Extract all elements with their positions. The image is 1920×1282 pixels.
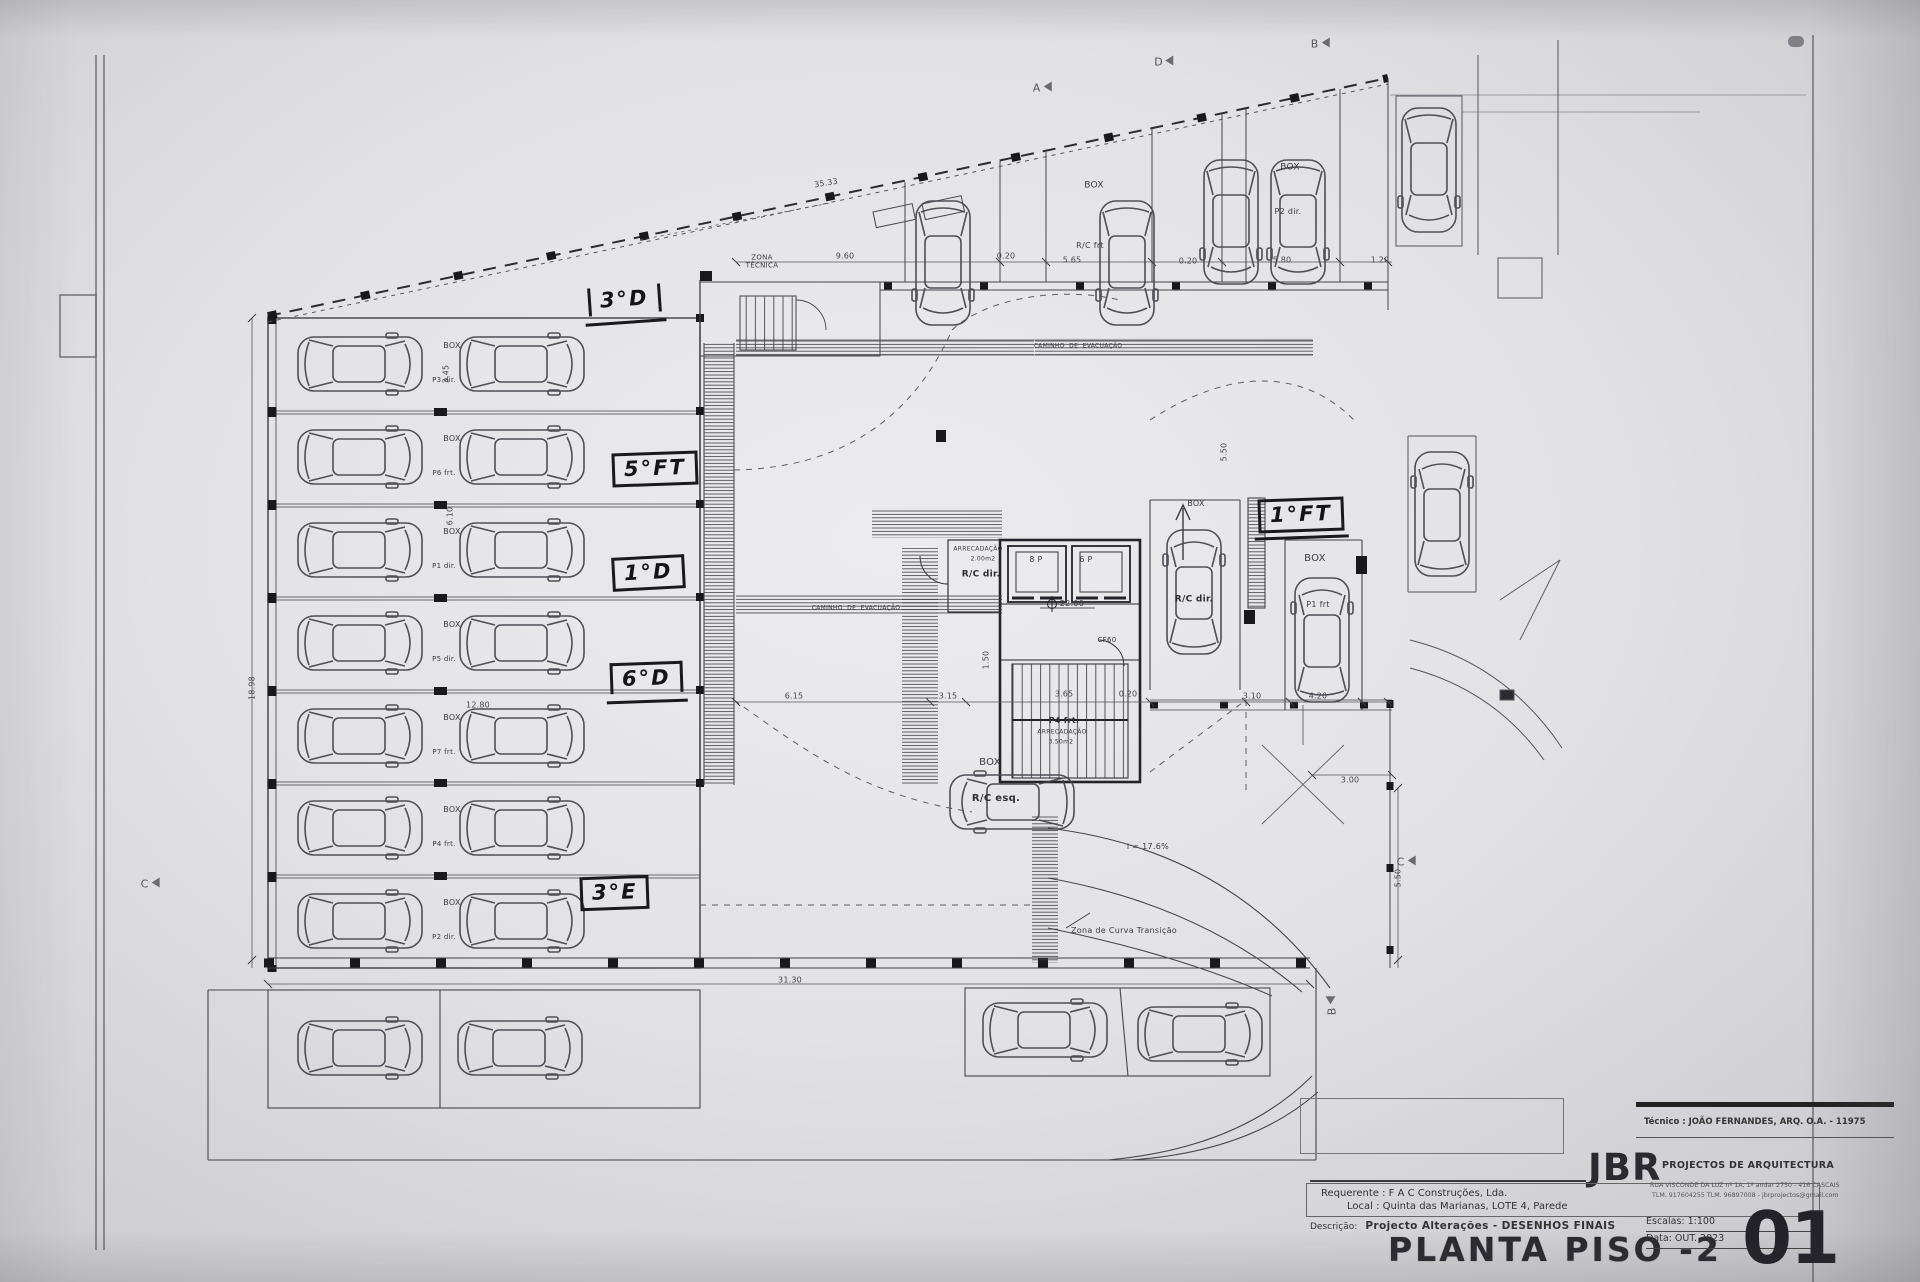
handnote-5ft-text: 5°FT <box>624 455 687 481</box>
level-mark: 22.00 <box>1060 599 1084 609</box>
rule-left-of-logo <box>1310 1180 1586 1182</box>
box-row-1: BOX <box>443 341 461 351</box>
stall-p5-dir: P5 dir. <box>432 655 456 663</box>
dimension-text: 31.30 <box>778 976 802 985</box>
dimension-text: 4.20 <box>1309 692 1328 701</box>
handnote-3d-text: 3°D <box>599 285 649 312</box>
box-center: BOX <box>979 757 1001 769</box>
cars <box>298 108 1473 1079</box>
box-rc-dir: BOX <box>1187 499 1205 509</box>
dimension-text: 1.20 <box>1371 256 1390 265</box>
dimension-text: 3.45 <box>442 365 451 384</box>
zona-tecnica-label: ZONA TÉCNICA <box>746 254 779 271</box>
room-rc-dir: R/C dir. <box>962 570 1000 581</box>
dimension-text: 5.80 <box>1273 256 1292 265</box>
date-text: Data: OUT. 2023 <box>1646 1233 1724 1244</box>
dimension-text: 3.00 <box>1341 776 1360 785</box>
stall-p6-frt: P6 frt. <box>432 469 455 477</box>
stall-rc-frt: R/C frt <box>1076 241 1104 251</box>
lift-8p: 8 P <box>1029 555 1042 565</box>
box-row-5: BOX <box>443 713 461 723</box>
handnote-6d: 6°D <box>609 661 683 695</box>
firm-subtitle-text: PROJECTOS DE ARQUITECTURA <box>1662 1160 1834 1171</box>
stall-p2-dir: P2 dir. <box>1275 207 1302 217</box>
section-marker: C <box>1397 856 1416 869</box>
handnote-1ft: 1°FT <box>1257 497 1344 534</box>
caminho-evacuacao-mid: CAMINHO DE EVACUAÇÃO <box>812 604 901 611</box>
box-top-right: BOX <box>1280 163 1300 174</box>
dimension-text: 5.50 <box>1220 443 1229 462</box>
dimension-text: 12.80 <box>466 701 490 710</box>
box-row-2: BOX <box>443 434 461 444</box>
dimension-text: 0.20 <box>1179 257 1198 266</box>
dimension-text: 3.10 <box>1243 692 1262 701</box>
plan-photo: 3°D 5°FT 1°D 6°D 3°E 1°FT Técnico : JOÃO… <box>0 0 1920 1282</box>
dimension-text: 6.10 <box>446 507 455 526</box>
stall-rc-dir: R/C dir. <box>1175 595 1213 606</box>
scale-text: Escalas: 1:100 <box>1646 1216 1715 1227</box>
door-cf60: CF60 <box>1097 636 1116 644</box>
section-marker: C <box>141 878 160 891</box>
section-marker: B <box>1326 997 1339 1016</box>
box-right: BOX <box>1304 553 1326 565</box>
technician-text: Técnico : JOÃO FERNANDES, ARQ. O.A. - 11… <box>1636 1117 1865 1127</box>
dimension-text: 0.20 <box>1119 690 1138 699</box>
dimension-text: 3.15 <box>939 692 958 701</box>
dimension-text: 0.20 <box>997 252 1016 261</box>
section-marker: B <box>1311 38 1330 51</box>
dimension-text: 1.50 <box>982 651 991 670</box>
dimension-text: 3.65 <box>1055 690 1074 699</box>
ramp-slope: i = 17.6% <box>1127 842 1169 852</box>
stall-p4-frt-left: P4 frt. <box>432 840 455 848</box>
stall-rc-esq: R/C esq. <box>972 793 1020 805</box>
section-marker: D <box>1154 56 1173 69</box>
handnote-3e: 3°E <box>579 875 650 911</box>
stall-p1-dir: P1 dir. <box>432 562 456 570</box>
box-row-6: BOX <box>443 805 461 815</box>
stall-p4-frt: P4 frt. <box>1049 716 1080 726</box>
firm-subtitle: PROJECTOS DE ARQUITECTURA <box>1662 1160 1834 1171</box>
stall-p2-dir-left: P2 dir. <box>432 933 456 941</box>
corner-mark <box>1788 36 1804 47</box>
handnote-3e-text: 3°E <box>592 879 638 905</box>
box-row-4: BOX <box>443 620 461 630</box>
legend-empty-box <box>1300 1098 1564 1154</box>
dimension-text: 18.98 <box>248 676 257 700</box>
caminho-evacuacao-top: CAMINHO DE EVACUAÇÃO <box>1034 342 1123 349</box>
zona-curva-transicao: Zona de Curva Transição <box>1071 926 1177 936</box>
box-row-7: BOX <box>443 898 461 908</box>
lift-6p: 6 P <box>1079 555 1092 565</box>
box-top-center: BOX <box>1084 181 1104 192</box>
handnote-1ft-text: 1°FT <box>1270 501 1333 527</box>
dimension-text: 5.65 <box>1063 256 1082 265</box>
arrecadacao-room: ARRECADAÇÃO <box>953 545 1002 552</box>
handnote-1d-text: 1°D <box>623 559 673 586</box>
floor-plan-drawing <box>0 0 1920 1282</box>
section-marker: A <box>1033 82 1052 95</box>
box-row-3: BOX <box>443 527 461 537</box>
description-label: Descrição: <box>1310 1222 1357 1232</box>
sheet-number: 01 <box>1742 1196 1838 1280</box>
handnote-6d-text: 6°D <box>622 665 671 691</box>
dimension-text: 6.15 <box>785 692 804 701</box>
handnote-3d: 3°D <box>587 284 661 317</box>
stall-p1-frt: P1 frt <box>1306 600 1330 610</box>
dimension-text: 9.60 <box>836 252 855 261</box>
handnote-1d: 1°D <box>611 554 685 592</box>
handnote-5ft: 5°FT <box>611 451 698 488</box>
arrecadacao-p4: ARRECADAÇÃO <box>1037 728 1086 735</box>
arrecadacao-p4-area: 3.50m2 <box>1049 738 1074 745</box>
arrecadacao-room-area: 2.00m2 <box>971 555 996 562</box>
dimension-text: 5.50 <box>1394 869 1403 888</box>
stall-p7-frt: P7 frt. <box>432 748 455 756</box>
sheet-number-text: 01 <box>1742 1196 1838 1280</box>
technician-row: Técnico : JOÃO FERNANDES, ARQ. O.A. - 11… <box>1636 1102 1894 1138</box>
